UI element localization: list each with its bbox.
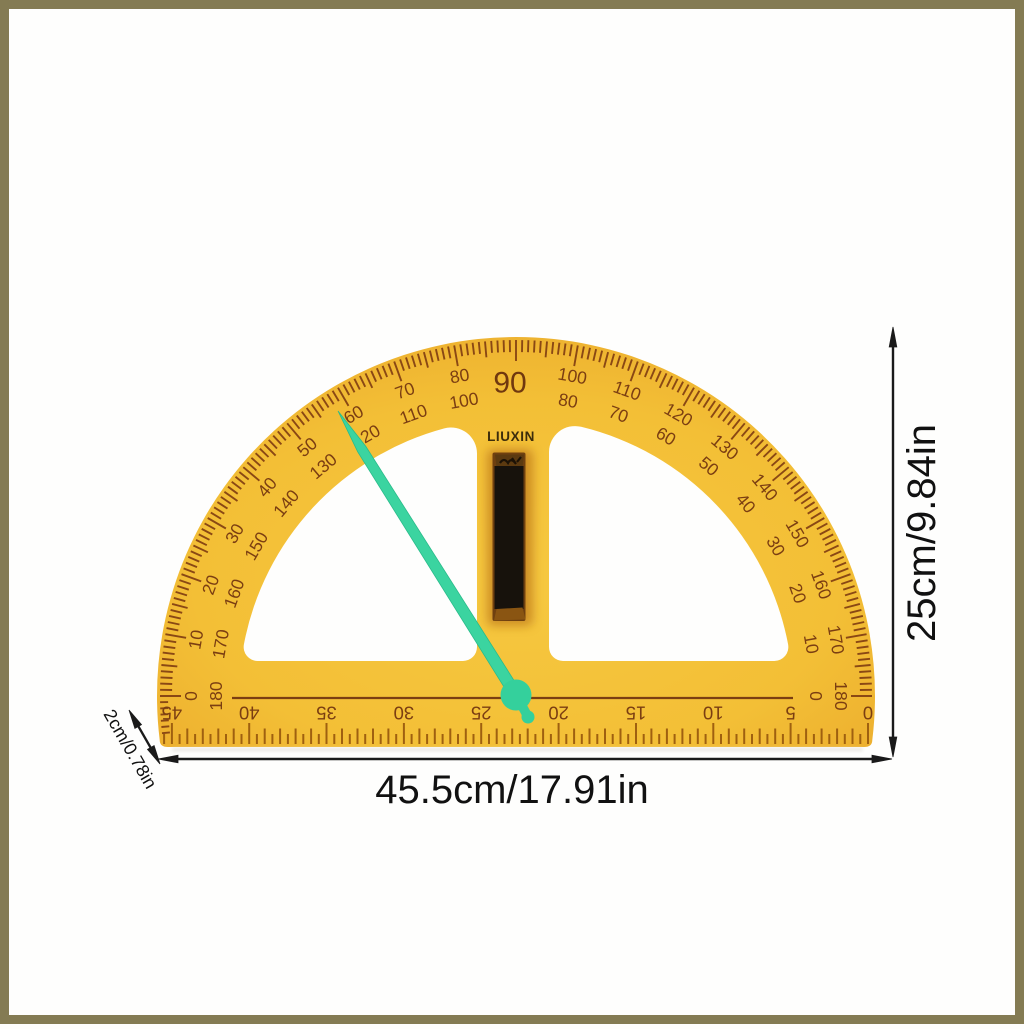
svg-text:5: 5 — [785, 703, 795, 724]
svg-text:0: 0 — [863, 703, 873, 724]
svg-text:90: 90 — [493, 367, 526, 400]
svg-text:35: 35 — [316, 703, 337, 724]
svg-text:0: 0 — [806, 691, 826, 701]
svg-text:LIUXIN: LIUXIN — [487, 429, 535, 444]
svg-text:0: 0 — [181, 691, 201, 701]
svg-text:40: 40 — [239, 703, 260, 724]
svg-text:20: 20 — [548, 703, 569, 724]
svg-text:180: 180 — [831, 681, 851, 710]
svg-text:45.5cm/17.91in: 45.5cm/17.91in — [375, 768, 649, 812]
svg-text:10: 10 — [184, 628, 207, 651]
svg-text:15: 15 — [626, 703, 647, 724]
svg-text:80: 80 — [557, 389, 580, 412]
svg-text:10: 10 — [703, 703, 724, 724]
svg-text:180: 180 — [206, 681, 226, 710]
svg-text:25cm/9.84in: 25cm/9.84in — [900, 424, 944, 642]
svg-text:45: 45 — [162, 703, 183, 724]
svg-text:30: 30 — [394, 703, 415, 724]
svg-text:10: 10 — [800, 633, 823, 656]
svg-text:80: 80 — [448, 364, 471, 387]
svg-text:25: 25 — [471, 703, 492, 724]
